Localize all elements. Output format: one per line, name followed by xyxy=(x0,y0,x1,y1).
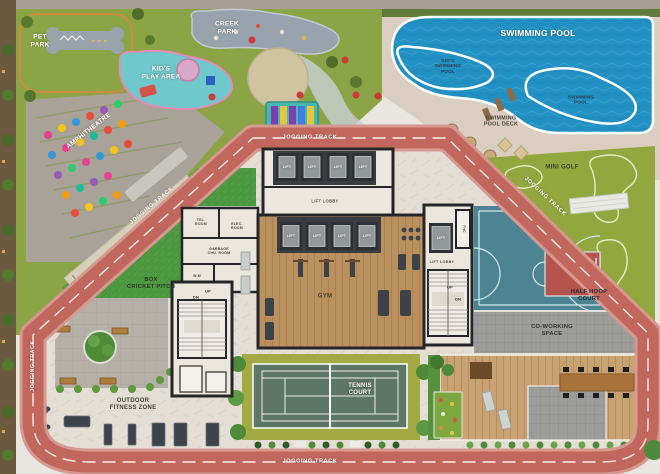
canopy xyxy=(248,48,308,108)
gym-block xyxy=(258,215,424,348)
dog-run-bone xyxy=(46,27,124,54)
wood-deck-zone xyxy=(428,355,648,440)
tennis-court-zone xyxy=(228,354,432,447)
right-core-lift xyxy=(429,223,453,253)
lift-core-block xyxy=(263,149,393,218)
play-cube xyxy=(206,76,215,85)
fhc-room xyxy=(456,210,470,248)
right-stairs xyxy=(428,270,468,336)
amenity-site-plan: PET PARK CREEK PARK KID'S PLAY AREA AMPH… xyxy=(0,0,660,474)
carousel xyxy=(177,59,199,81)
top-wall xyxy=(0,0,660,9)
right-core-block xyxy=(424,205,472,345)
desk xyxy=(470,362,492,379)
left-wall xyxy=(0,0,16,474)
left-stair-core xyxy=(172,282,232,396)
site-plan-canvas xyxy=(0,0,660,474)
left-stairs xyxy=(178,300,226,358)
